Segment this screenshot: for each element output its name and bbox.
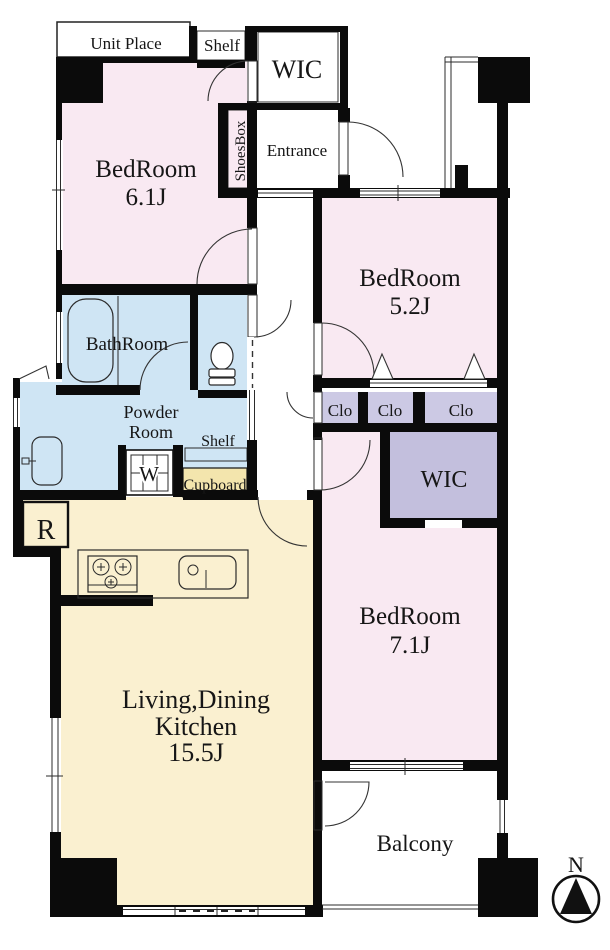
floor-plan: Unit Place Shelf WIC ShoesBox Entrance B… [0,0,610,950]
ldk-label-2: Kitchen [155,712,237,741]
ldk-label-1: Living,Dining [122,685,270,714]
window [54,312,63,363]
closet-3-label: Clo [449,401,474,420]
door-opening [425,520,462,528]
shelf-top-label: Shelf [204,36,240,55]
door-leaf [314,392,322,423]
ldk-size: 15.5J [168,738,224,767]
washing-machine-label: W [139,462,159,486]
bathroom-label: BathRoom [86,334,169,355]
wic-top-label: WIC [272,55,323,84]
wic-lower-label: WIC [421,467,468,493]
door-leaf [314,438,322,490]
door-arc [254,300,291,337]
door-opening [258,492,307,500]
door-arc [325,782,369,826]
entrance-label: Entrance [267,141,327,160]
door-leaf [314,323,322,375]
bedroom-7-1-size: 7.1J [390,632,431,659]
closet-1-label: Clo [328,401,353,420]
door-leaf [248,228,257,284]
cupboard-label: Cupboard [183,477,246,494]
window [497,800,508,833]
vent-flap [19,366,49,379]
shoes-box-label: ShoesBox [233,120,249,181]
door-leaf [248,295,257,337]
door-leaf [339,122,348,175]
unit-place-label: Unit Place [90,34,161,53]
sliding-door [247,390,257,440]
window [54,140,63,250]
closet-2-label: Clo [378,401,403,420]
window [48,718,61,832]
balcony-label: Balcony [377,831,454,856]
balcony-railing [322,905,478,909]
room-fills [20,22,497,905]
bedroom-6-1-label: BedRoom [95,156,197,183]
bedroom-7-1-label: BedRoom [359,603,461,630]
north-label: N [568,852,584,877]
refrigerator-label: R [37,515,56,546]
bedroom-5-2-label: BedRoom [359,265,461,292]
door-arc [287,392,313,418]
door-arc [348,122,403,177]
bedroom-5-2-size: 5.2J [390,293,431,320]
window [360,189,440,197]
powder-room-label-1: Powder [124,402,179,422]
north-arrow-icon [553,876,599,922]
toilet-icon [209,343,235,386]
door-leaf [248,61,257,102]
bedroom-6-1-size: 6.1J [126,184,167,211]
shelf-powder-label: Shelf [201,433,235,450]
window [11,398,20,427]
powder-room-label-2: Room [129,422,173,442]
